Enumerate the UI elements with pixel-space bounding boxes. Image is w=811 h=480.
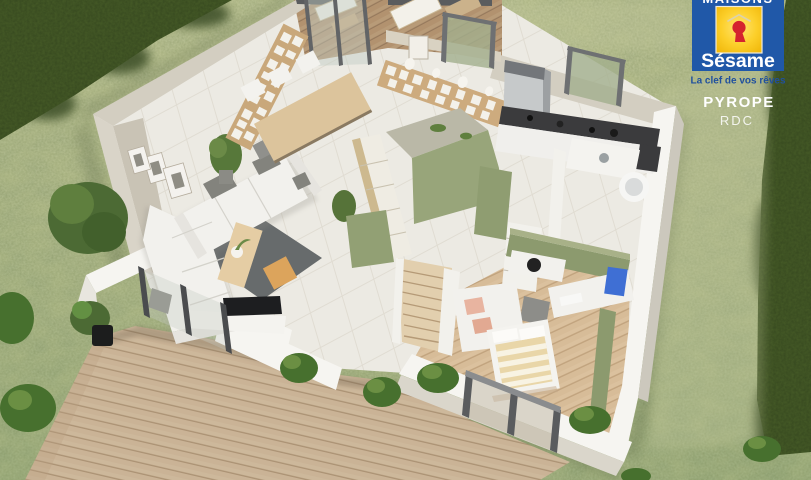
svg-text:RDC: RDC [720, 113, 754, 128]
svg-text:PYROPE: PYROPE [703, 94, 775, 111]
svg-text:MAISONS: MAISONS [702, 0, 773, 6]
svg-text:La clef de vos rêves: La clef de vos rêves [690, 76, 785, 87]
svg-text:Sésame: Sésame [701, 50, 775, 72]
